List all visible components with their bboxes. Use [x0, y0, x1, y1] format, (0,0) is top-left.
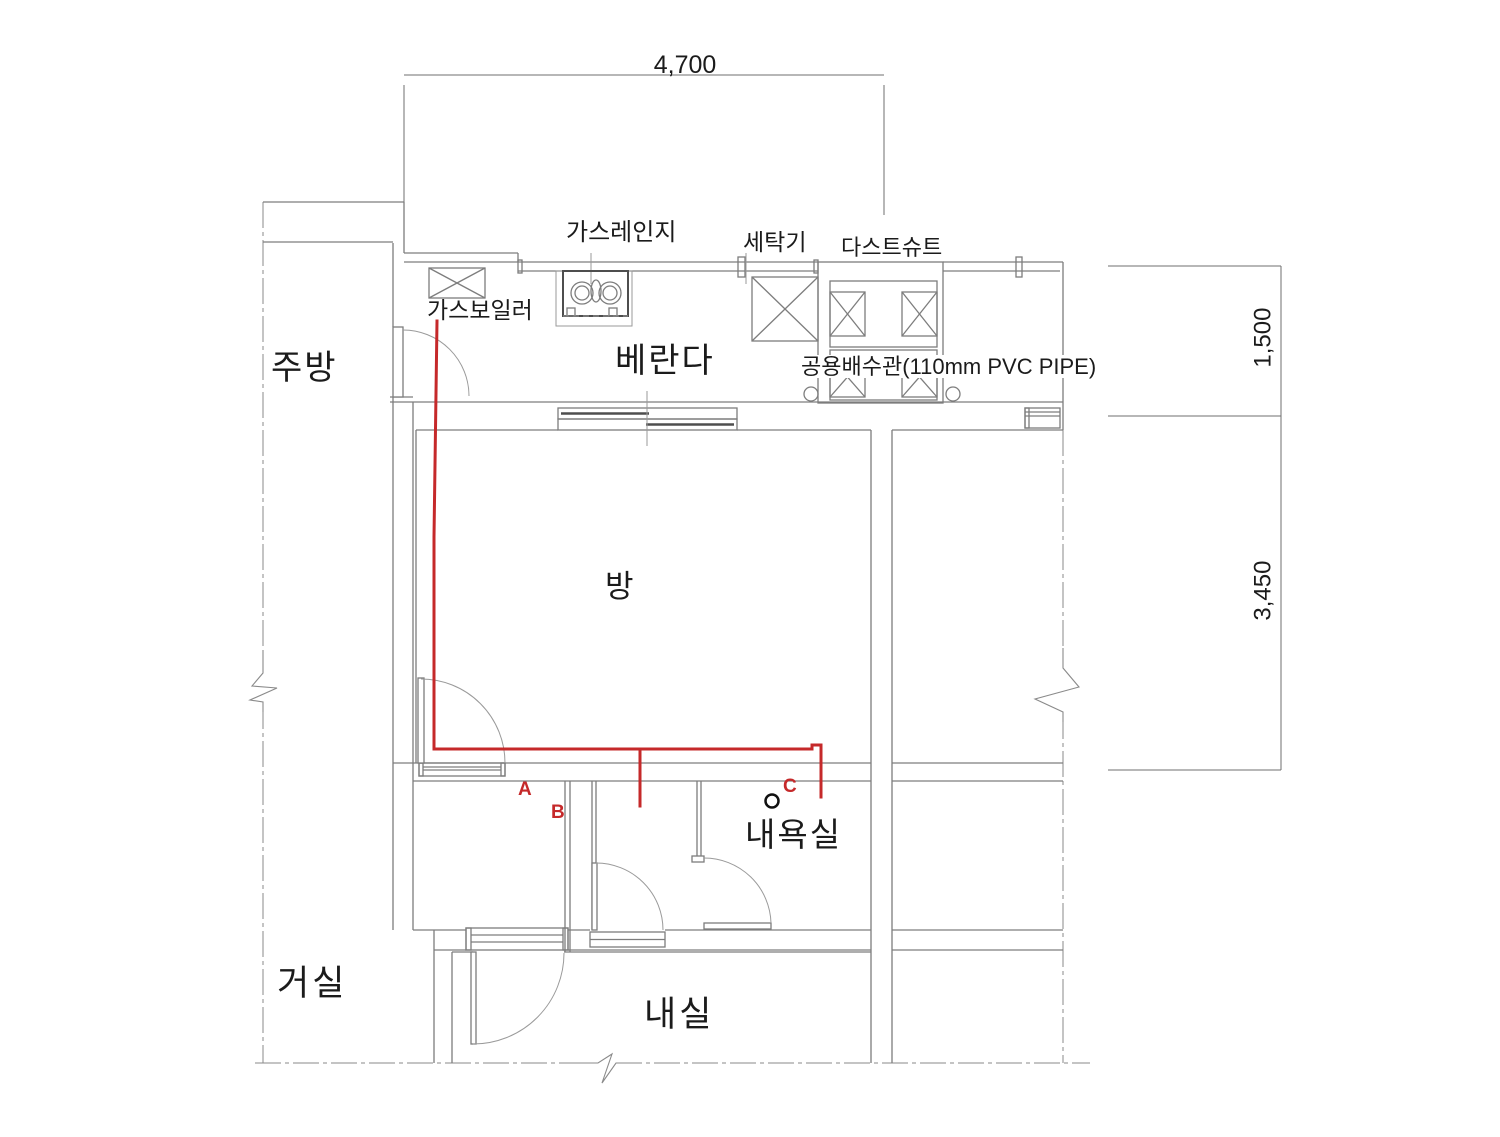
door-bathroom: [704, 858, 771, 929]
windows: [419, 391, 1060, 950]
label-drain-pipe: 공용배수관(110mm PVC PIPE): [799, 355, 1098, 378]
door-entry: [471, 952, 564, 1044]
label-dust-chute: 다스트슈트: [841, 236, 942, 259]
sliding-window-room-veranda: [558, 391, 737, 446]
label-veranda: 베란다: [615, 344, 715, 380]
dimension-right-lower: 3,450: [1250, 551, 1275, 631]
label-gas-boiler: 가스보일러: [427, 298, 533, 322]
point-c-circle: [766, 795, 779, 808]
label-room: 방: [605, 571, 634, 604]
floor-plan: 4,700 1,500 3,450 가스레인지 세탁기 다스트슈트 가스보일러 …: [0, 0, 1500, 1137]
point-b-label: B: [551, 802, 565, 824]
label-bathroom: 내욕실: [745, 818, 842, 853]
window-right-room: [1025, 408, 1060, 428]
gas-boiler-icon: [429, 268, 485, 298]
label-kitchen: 주방: [271, 351, 338, 387]
label-washing-machine: 세탁기: [743, 230, 806, 254]
break-symbol-right: [1035, 648, 1079, 722]
point-a-label: A: [518, 779, 532, 801]
red-pipe-route: [434, 321, 821, 806]
equipment: [429, 262, 960, 403]
dimension-right-upper: 1,500: [1250, 298, 1275, 378]
dimension-lines: [404, 75, 1281, 770]
drain-pipe-circle-right: [946, 387, 960, 401]
label-living-room: 거실: [277, 966, 347, 1003]
washing-machine-icon: [752, 277, 818, 341]
red-route-main: [434, 321, 821, 797]
label-inner-room: 내실: [644, 997, 714, 1034]
entry-sill: [466, 928, 568, 950]
gas-range-icon: [556, 271, 632, 326]
door-small-room: [592, 863, 663, 930]
center-lines: [255, 202, 1090, 1063]
break-symbol-left: [250, 650, 277, 712]
drain-pipe-circle-left: [804, 387, 818, 401]
point-c-label: C: [783, 776, 797, 798]
dimension-top: 4,700: [640, 52, 730, 78]
dust-chute-icon: [804, 262, 960, 403]
label-gas-range: 가스레인지: [566, 220, 676, 245]
threshold-small-room: [590, 932, 665, 947]
door-boiler-closet: [393, 327, 469, 397]
doors: [393, 327, 771, 1044]
break-symbol-bottom: [584, 1054, 628, 1083]
sill-room-hall: [419, 763, 505, 776]
